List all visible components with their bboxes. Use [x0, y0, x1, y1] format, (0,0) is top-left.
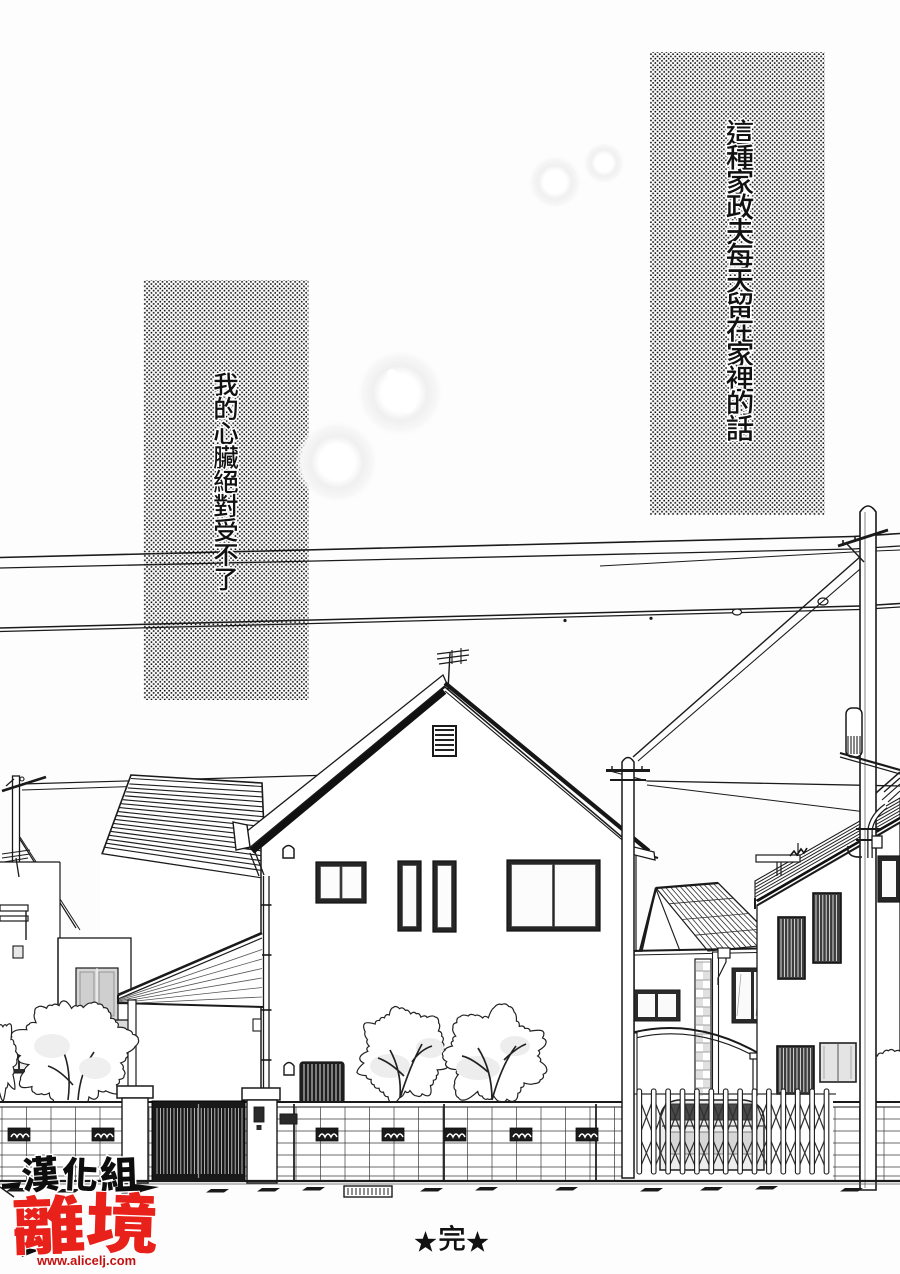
svg-text:www.alicelj.com: www.alicelj.com [36, 1253, 136, 1268]
